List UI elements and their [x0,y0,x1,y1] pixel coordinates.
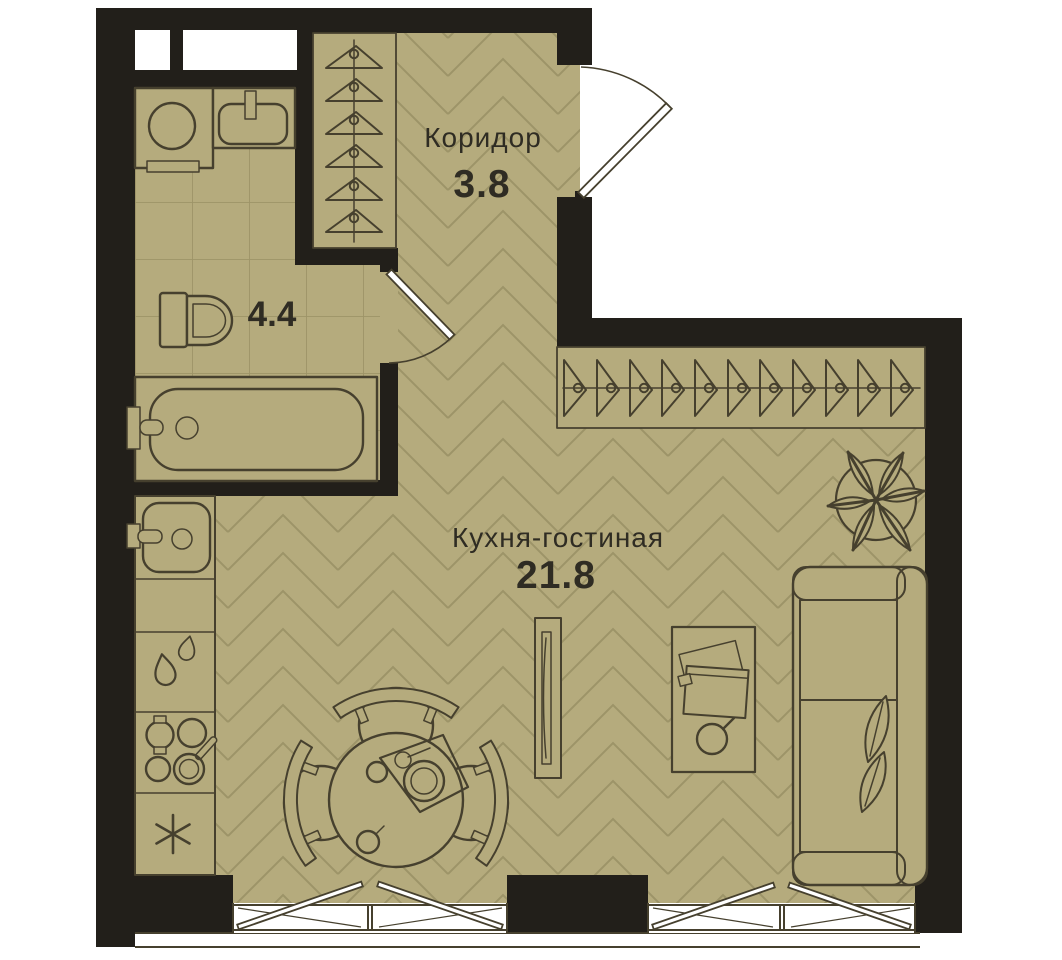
kitchen-counter-run [135,496,215,875]
sofa-body [793,567,927,885]
bathtub-faucet [140,420,163,435]
wall-bathroom-bottom [96,480,398,496]
toilet-tank [160,293,187,347]
floor-plan: Коридор 3.8 4.4 Кухня-гостиная 21.8 [0,0,1062,960]
burner-knob [154,747,166,754]
wardrobe [557,347,925,428]
wall-bathroom-right-lower [380,363,398,496]
sink-faucet [245,91,256,119]
window-sill [135,933,923,947]
tv-stand [535,618,561,778]
wall-living-top [557,318,962,347]
vent-shaft-small [135,30,170,70]
book [683,666,748,718]
kitchen-faucet [138,530,162,543]
bathtub-faucet-base [127,407,140,449]
kitchen-living-area: 21.8 [516,554,596,597]
bathtub-rim [135,377,377,481]
floor-plan-drawing: Коридор 3.8 4.4 Кухня-гостиная 21.8 [0,0,1062,960]
corridor-label: Коридор [424,122,542,153]
vent-shaft-large [183,30,297,70]
entrance-threshold [580,65,592,197]
bathroom-door-threshold [380,272,398,363]
wall-right-step [915,877,962,933]
wall-bathroom-right-upper [380,248,398,272]
wall-top-corridor [313,8,592,33]
vent-shafts [135,30,297,70]
outside-top-right [592,0,962,318]
wall-left [96,8,135,947]
kitchen-living-label: Кухня-гостиная [452,522,664,553]
burner-knob [154,716,166,723]
outside-area [580,0,962,318]
bathroom-sink [213,88,295,148]
book-clip [678,674,692,687]
wall-pier-above-door [557,8,592,65]
coffee-table [672,627,755,772]
toilet [160,293,232,347]
bathtub [127,377,377,481]
entry-closet [313,33,396,248]
wall-pier-bottom-left [96,875,233,933]
sofa [793,567,927,885]
washer-drawer [147,161,199,172]
washing-machine [135,88,213,172]
wall-pier-below-door [557,197,592,330]
kitchen-cabinets [127,496,218,875]
bathroom-area: 4.4 [248,295,297,334]
tv-body [535,618,561,778]
wall-bathroom-closet-divider [295,33,315,265]
washer-body [135,88,213,168]
wall-pier-bottom-middle [507,875,648,933]
wall-right [925,318,962,877]
corridor-area: 3.8 [453,163,510,206]
